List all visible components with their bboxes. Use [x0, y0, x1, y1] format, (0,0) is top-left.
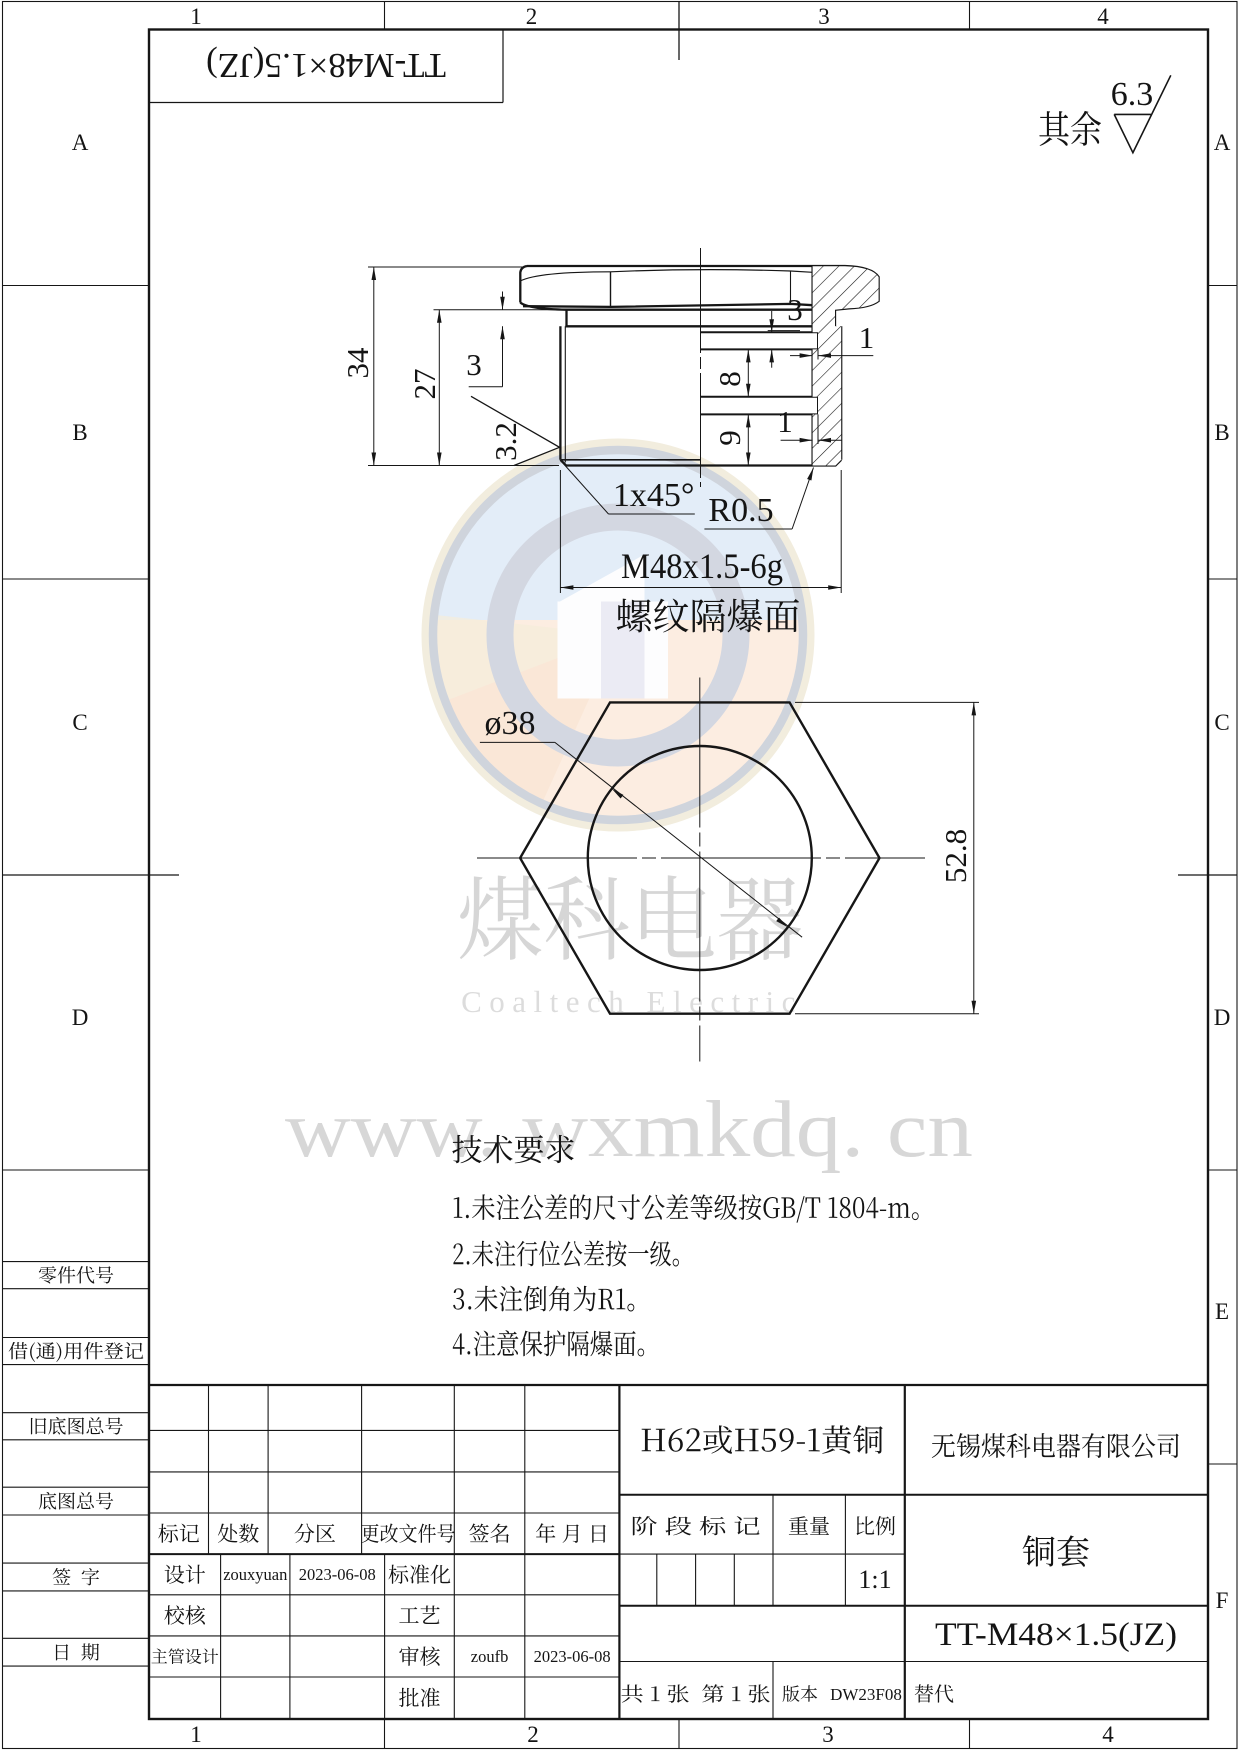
svg-text:3: 3 — [466, 347, 482, 382]
svg-text:2023-06-08: 2023-06-08 — [299, 1565, 376, 1584]
svg-text:1:1: 1:1 — [858, 1565, 891, 1594]
svg-text:A: A — [72, 130, 89, 155]
svg-text:B: B — [72, 420, 87, 445]
svg-text:R0.5: R0.5 — [708, 492, 773, 529]
svg-text:3: 3 — [822, 1722, 834, 1747]
svg-text:34: 34 — [340, 347, 375, 379]
svg-text:1x45°: 1x45° — [613, 477, 695, 514]
svg-text:ø38: ø38 — [485, 705, 536, 742]
svg-text:1: 1 — [859, 320, 875, 355]
svg-text:M48x1.5-6g: M48x1.5-6g — [621, 546, 783, 586]
svg-text:2: 2 — [527, 1722, 539, 1747]
svg-text:8: 8 — [712, 371, 747, 387]
svg-text:E: E — [1215, 1299, 1229, 1324]
svg-text:4: 4 — [1097, 4, 1109, 29]
svg-text:C: C — [72, 710, 87, 735]
svg-text:C: C — [1214, 710, 1229, 735]
svg-text:6.3: 6.3 — [1111, 76, 1154, 113]
svg-text:DW23F08: DW23F08 — [830, 1685, 902, 1704]
svg-text:TT-M48×1.5(JZ): TT-M48×1.5(JZ) — [206, 46, 446, 85]
svg-text:2: 2 — [526, 4, 538, 29]
svg-text:F: F — [1216, 1588, 1229, 1613]
svg-text:27: 27 — [407, 369, 442, 400]
svg-text:52.8: 52.8 — [938, 829, 973, 883]
svg-text:4: 4 — [1102, 1722, 1114, 1747]
svg-text:D: D — [72, 1005, 89, 1030]
svg-text:1: 1 — [190, 4, 202, 29]
svg-text:www. wxmkdq. cn: www. wxmkdq. cn — [285, 1086, 973, 1174]
svg-text:D: D — [1214, 1005, 1231, 1030]
svg-text:zoufb: zoufb — [471, 1647, 509, 1666]
svg-text:3: 3 — [787, 292, 803, 327]
svg-text:B: B — [1214, 420, 1229, 445]
svg-text:3.2: 3.2 — [488, 422, 523, 461]
svg-text:1: 1 — [190, 1722, 202, 1747]
svg-text:1: 1 — [777, 404, 793, 439]
svg-text:9: 9 — [712, 430, 747, 446]
svg-text:2023-06-08: 2023-06-08 — [534, 1647, 611, 1666]
svg-text:A: A — [1214, 130, 1231, 155]
svg-text:3: 3 — [818, 4, 830, 29]
svg-text:zouxyuan: zouxyuan — [223, 1565, 287, 1584]
svg-text:TT-M48×1.5(JZ): TT-M48×1.5(JZ) — [935, 1617, 1177, 1653]
